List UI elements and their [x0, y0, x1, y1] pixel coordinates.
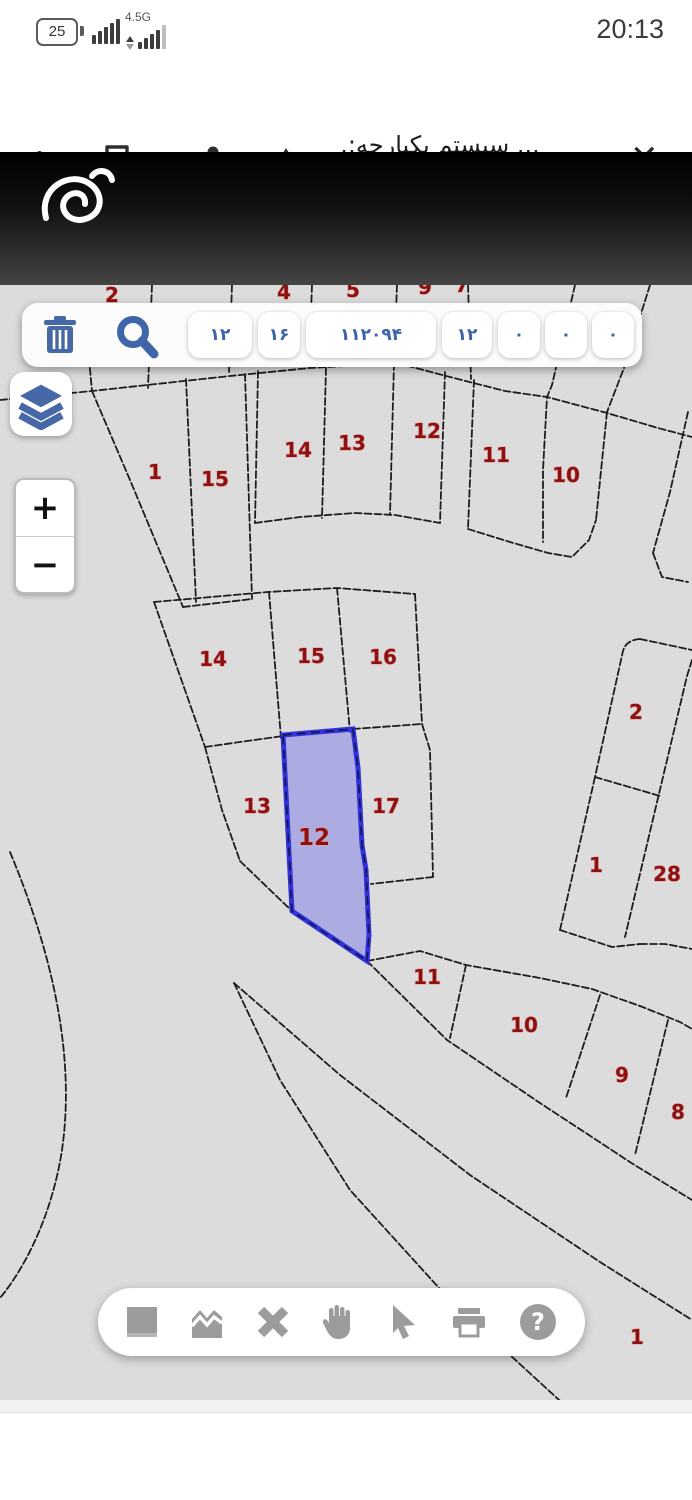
phone-screen: 25 4.5G 20:13 .:سیستم یکپارچه ... — [0, 0, 692, 1500]
clock: 20:13 — [596, 14, 664, 45]
map-bottom-edge — [0, 1400, 692, 1412]
app-header: شهرداری اصفهان سیستم یکپارچه شهرسازی و د… — [0, 152, 692, 290]
parcel-label: 4 — [277, 285, 291, 304]
cursor-icon — [387, 1304, 419, 1340]
download-arrow-icon — [126, 44, 134, 50]
map-search-toolbar: ۱۲ ۱۶ ۱۱۲۰۹۴ ۱۲ ۰ ۰ ۰ — [22, 303, 642, 367]
parcel-label: 1 — [589, 853, 603, 877]
parcel-label: 17 — [372, 794, 400, 818]
rectangle-icon — [126, 1306, 158, 1338]
parcel-label: 9 — [418, 285, 432, 299]
parcel-label: 16 — [369, 645, 397, 669]
clear-tool-button[interactable] — [256, 1305, 290, 1339]
battery-indicator: 25 — [36, 18, 78, 46]
parcel-label: 7 — [455, 285, 469, 297]
parcel-label: 5 — [346, 285, 360, 302]
chart-icon — [190, 1305, 224, 1339]
select-tool-button[interactable] — [387, 1304, 419, 1340]
hand-icon — [321, 1304, 355, 1340]
signal-bars-2-icon — [138, 25, 166, 49]
highlighted-parcel-label: 12 — [298, 825, 330, 851]
search-field-5[interactable]: ۰ — [498, 312, 540, 358]
parcel-label: 9 — [615, 1063, 629, 1087]
map-tools-toolbar: ? — [98, 1288, 585, 1356]
parcel-label: 1 — [630, 1325, 644, 1349]
print-tool-button[interactable] — [451, 1306, 487, 1338]
search-field-7[interactable]: ۰ — [592, 312, 634, 358]
printer-icon — [451, 1306, 487, 1338]
pan-tool-button[interactable] — [321, 1304, 355, 1340]
android-nav-bar — [0, 1412, 692, 1500]
cadastral-map[interactable]: 2459711514131211101415161317212811109811… — [0, 285, 692, 1412]
upload-arrow-icon — [126, 36, 134, 42]
search-field-6[interactable]: ۰ — [545, 312, 587, 358]
search-field-4[interactable]: ۱۲ — [442, 312, 492, 358]
network-type-label: 4.5G — [125, 10, 151, 24]
signal-bars-icon — [92, 19, 120, 44]
parcel-label: 1 — [148, 460, 162, 484]
profile-chart-tool-button[interactable] — [190, 1305, 224, 1339]
browser-toolbar: .:سیستم یکپارچه ... esup.isfahan.ir ✕ — [0, 60, 692, 152]
parcel-label: 15 — [201, 467, 229, 491]
layers-button[interactable] — [10, 372, 72, 436]
parcel-label: 14 — [284, 438, 312, 462]
parcel-label: 13 — [243, 794, 271, 818]
map-container: 2459711514131211101415161317212811109811… — [0, 285, 692, 1412]
parcel-label: 14 — [199, 647, 227, 671]
parcel-label: 2 — [629, 700, 643, 724]
parcel-label: 13 — [338, 431, 366, 455]
zoom-in-button[interactable]: + — [16, 480, 74, 536]
search-field-1[interactable]: ۱۲ — [188, 312, 252, 358]
parcel-label: 15 — [297, 644, 325, 668]
battery-nub — [80, 26, 84, 36]
delete-trash-button[interactable] — [42, 316, 78, 356]
parcel-label: 10 — [552, 463, 580, 487]
svg-text:?: ? — [531, 1308, 545, 1336]
parcel-label: 8 — [671, 1100, 685, 1124]
rectangle-tool-button[interactable] — [126, 1306, 158, 1338]
help-tool-button[interactable]: ? — [519, 1303, 557, 1341]
parcel-label: 28 — [653, 862, 681, 886]
help-icon: ? — [519, 1303, 557, 1341]
search-field-2[interactable]: ۱۶ — [258, 312, 300, 358]
status-bar: 25 4.5G 20:13 — [0, 0, 692, 60]
parcel-label: 10 — [510, 1013, 538, 1037]
search-button[interactable] — [114, 313, 160, 359]
parcel-label: 11 — [413, 965, 441, 989]
parcel-label: 12 — [413, 419, 441, 443]
layers-icon — [16, 378, 66, 430]
search-field-3[interactable]: ۱۱۲۰۹۴ — [306, 312, 436, 358]
municipality-logo — [18, 160, 118, 252]
parcel-label: 11 — [482, 443, 510, 467]
close-x-icon — [256, 1305, 290, 1339]
zoom-control: + − — [14, 478, 76, 594]
zoom-out-button[interactable]: − — [16, 537, 74, 593]
